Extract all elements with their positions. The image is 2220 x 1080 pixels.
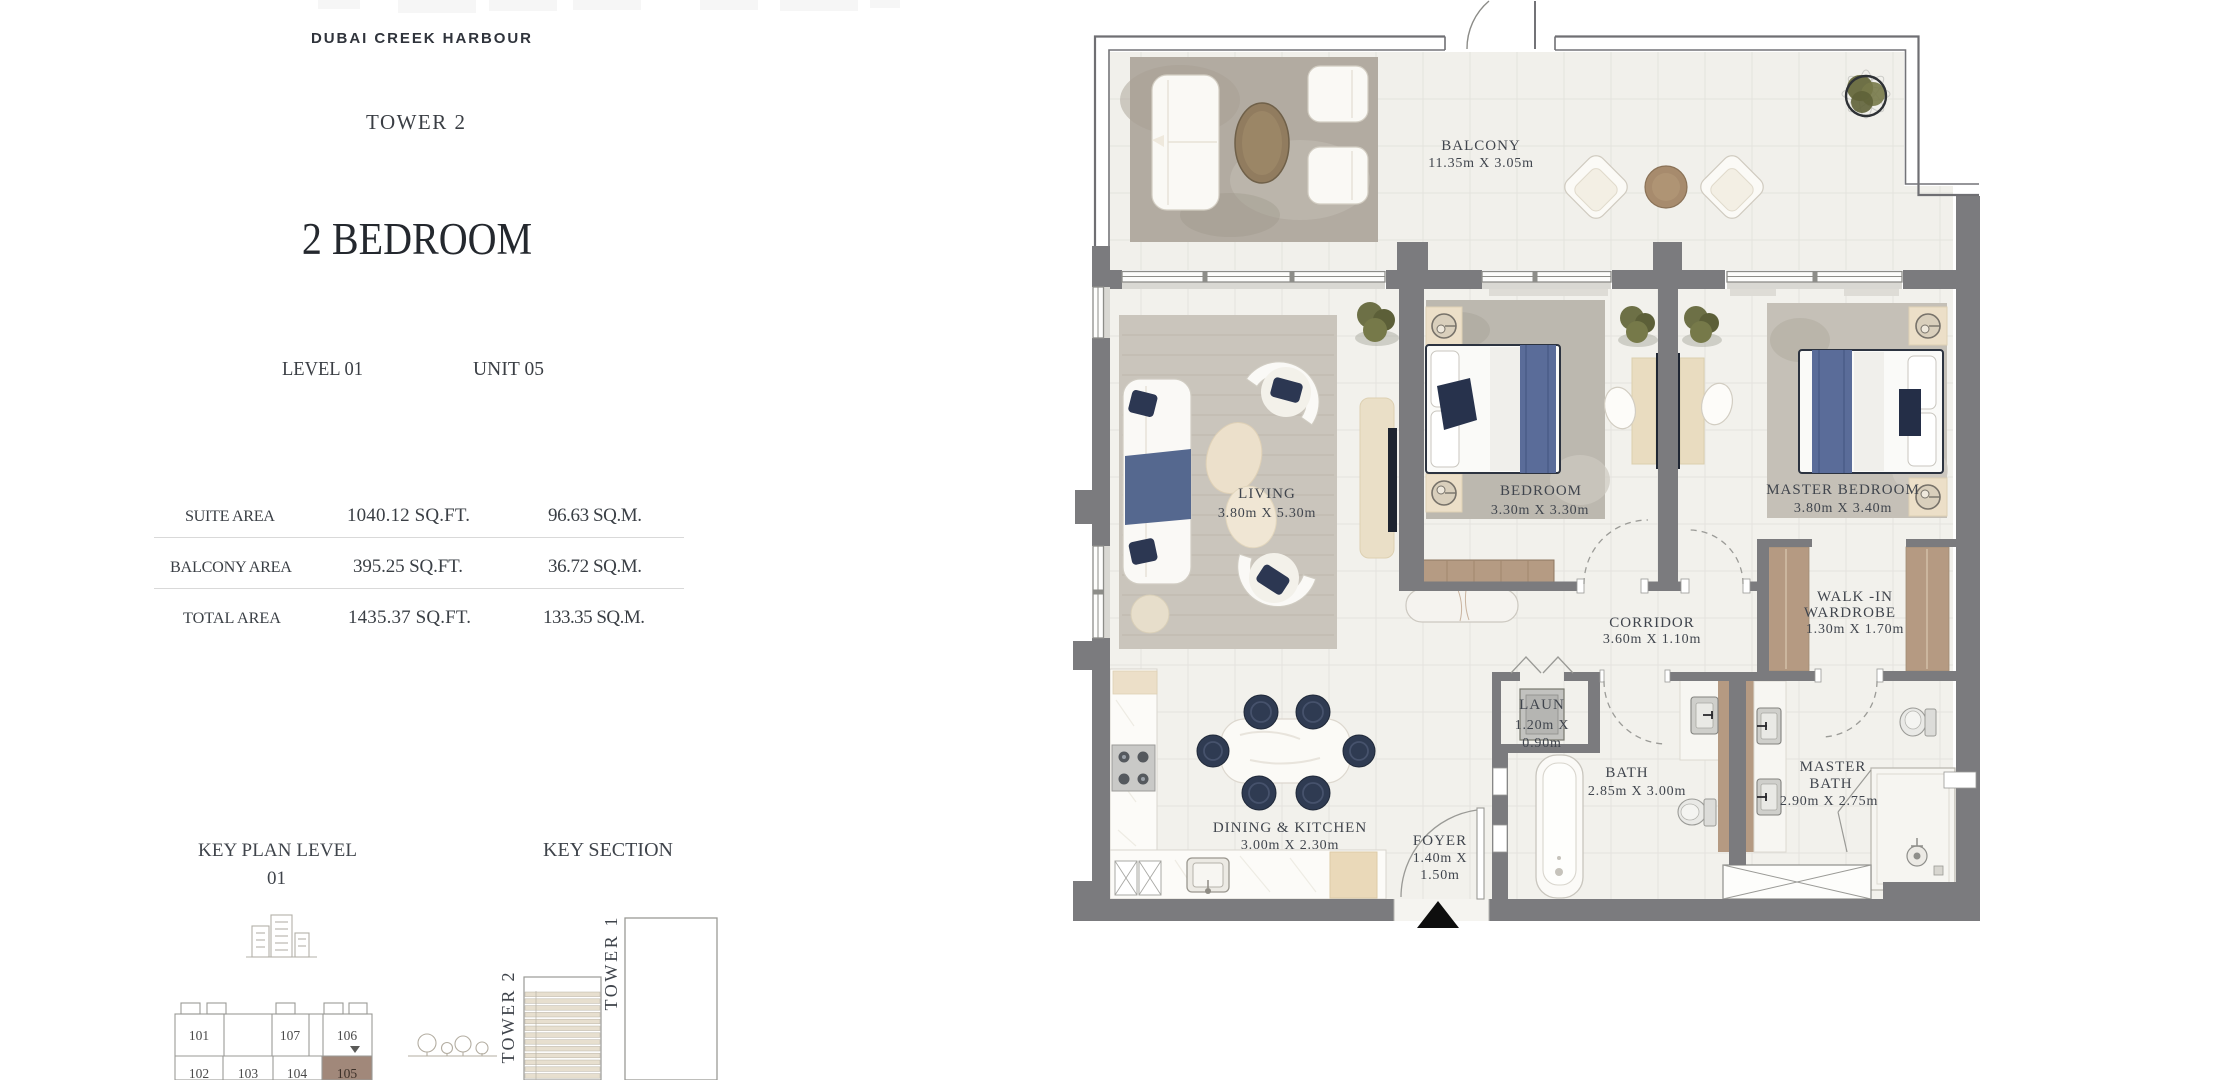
svg-text:WALK -IN: WALK -IN xyxy=(1817,589,1893,605)
svg-text:96.63 SQ.M.: 96.63 SQ.M. xyxy=(548,505,642,526)
svg-text:106: 106 xyxy=(337,1028,358,1043)
svg-text:133.35 SQ.M.: 133.35 SQ.M. xyxy=(543,607,645,628)
svg-text:01: 01 xyxy=(267,868,286,889)
svg-text:UNIT 05: UNIT 05 xyxy=(473,359,544,380)
svg-text:11.35m X 3.05m: 11.35m X 3.05m xyxy=(1428,156,1534,171)
svg-text:395.25 SQ.FT.: 395.25 SQ.FT. xyxy=(353,556,463,577)
svg-text:1.20m X: 1.20m X xyxy=(1515,718,1570,733)
svg-text:1040.12 SQ.FT.: 1040.12 SQ.FT. xyxy=(347,505,470,526)
svg-text:107: 107 xyxy=(280,1028,301,1043)
svg-text:2.85m X 3.00m: 2.85m X 3.00m xyxy=(1588,784,1686,799)
svg-text:TOWER 2: TOWER 2 xyxy=(498,973,518,1064)
svg-text:BATH: BATH xyxy=(1605,765,1648,781)
svg-text:TOWER 1: TOWER 1 xyxy=(601,918,621,1011)
svg-text:WARDROBE: WARDROBE xyxy=(1804,605,1896,621)
svg-text:0.90m: 0.90m xyxy=(1522,736,1561,751)
svg-text:DINING & KITCHEN: DINING & KITCHEN xyxy=(1213,820,1367,836)
svg-text:BATH: BATH xyxy=(1809,776,1852,792)
svg-text:BALCONY: BALCONY xyxy=(1441,138,1521,154)
svg-text:CORRIDOR: CORRIDOR xyxy=(1609,615,1695,631)
svg-text:3.00m X 2.30m: 3.00m X 2.30m xyxy=(1241,838,1339,853)
svg-text:3.30m X 3.30m: 3.30m X 3.30m xyxy=(1491,503,1589,518)
svg-text:LEVEL 01: LEVEL 01 xyxy=(282,359,363,380)
svg-text:3.60m X 1.10m: 3.60m X 1.10m xyxy=(1603,632,1701,647)
svg-text:103: 103 xyxy=(238,1066,259,1080)
svg-text:MASTER: MASTER xyxy=(1800,759,1867,775)
svg-text:102: 102 xyxy=(189,1066,209,1080)
svg-text:1.40m X: 1.40m X xyxy=(1413,851,1468,866)
svg-text:MASTER BEDROOM: MASTER BEDROOM xyxy=(1766,482,1920,498)
svg-text:3.80m X 5.30m: 3.80m X 5.30m xyxy=(1218,506,1316,521)
svg-text:2 BEDROOM: 2 BEDROOM xyxy=(302,215,532,265)
svg-text:FOYER: FOYER xyxy=(1413,833,1467,849)
svg-text:KEY SECTION: KEY SECTION xyxy=(543,839,673,861)
svg-text:1.50m: 1.50m xyxy=(1420,868,1459,883)
svg-text:LAUN: LAUN xyxy=(1519,697,1565,713)
svg-text:105: 105 xyxy=(337,1066,358,1080)
svg-text:KEY PLAN LEVEL: KEY PLAN LEVEL xyxy=(198,840,357,861)
svg-text:36.72 SQ.M.: 36.72 SQ.M. xyxy=(548,556,642,577)
svg-text:1.30m X 1.70m: 1.30m X 1.70m xyxy=(1806,622,1904,637)
svg-text:3.80m X 3.40m: 3.80m X 3.40m xyxy=(1794,501,1892,516)
svg-text:DUBAI CREEK HARBOUR: DUBAI CREEK HARBOUR xyxy=(311,30,531,47)
svg-text:SUITE AREA: SUITE AREA xyxy=(185,507,275,525)
svg-text:101: 101 xyxy=(189,1028,209,1043)
svg-text:TOTAL AREA: TOTAL AREA xyxy=(183,609,281,627)
svg-text:1435.37 SQ.FT.: 1435.37 SQ.FT. xyxy=(348,607,471,628)
svg-text:104: 104 xyxy=(287,1066,308,1080)
svg-text:2.90m X 2.75m: 2.90m X 2.75m xyxy=(1780,794,1878,809)
svg-text:BEDROOM: BEDROOM xyxy=(1500,483,1582,499)
svg-text:LIVING: LIVING xyxy=(1238,486,1296,502)
svg-text:BALCONY AREA: BALCONY AREA xyxy=(170,558,292,576)
svg-text:TOWER 2: TOWER 2 xyxy=(366,110,465,134)
